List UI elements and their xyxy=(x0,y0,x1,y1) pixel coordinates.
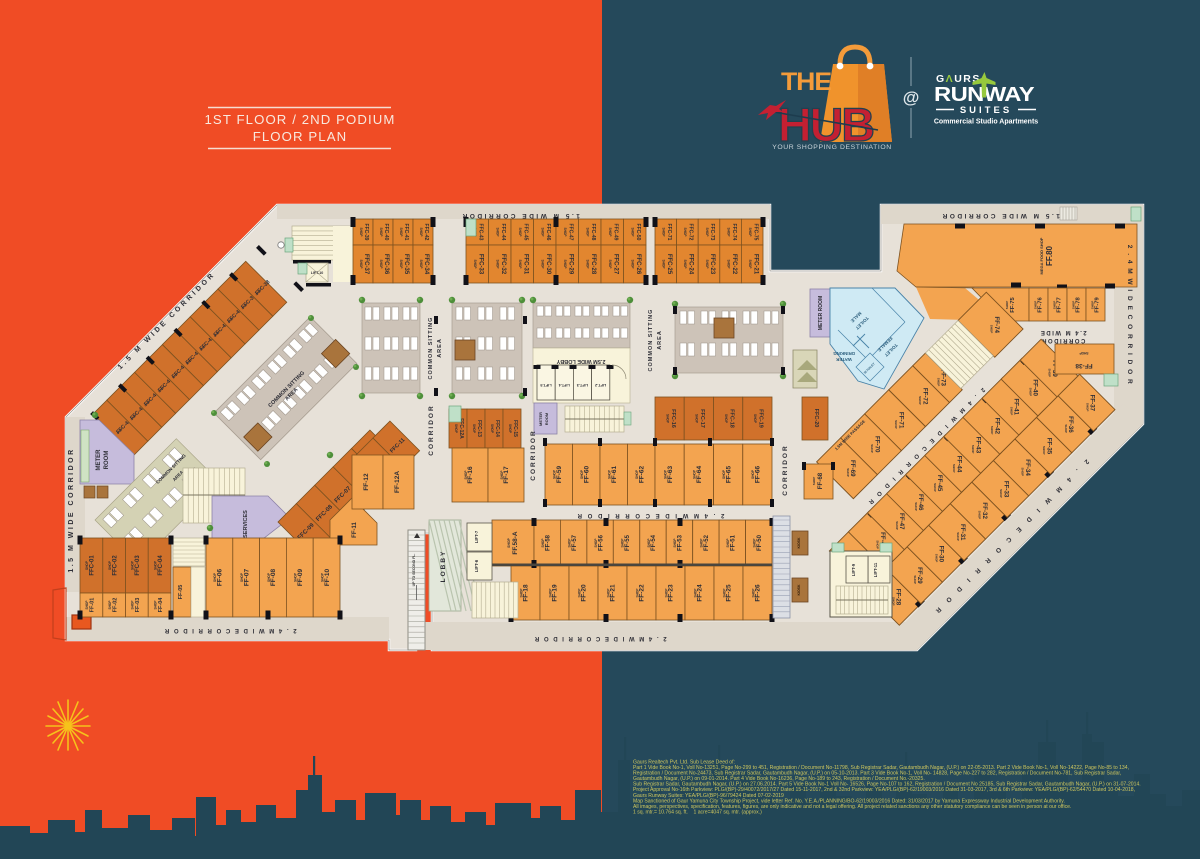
svg-text:SHOP: SHOP xyxy=(673,538,677,548)
svg-text:SHOP: SHOP xyxy=(496,227,500,237)
svg-text:FF-59: FF-59 xyxy=(556,465,563,483)
svg-text:SHOP: SHOP xyxy=(724,414,728,424)
svg-text:CORRIDOR: CORRIDOR xyxy=(1041,337,1086,343)
svg-text:1.5 M WIDE CORRIDOR: 1.5 M WIDE CORRIDOR xyxy=(460,212,580,219)
svg-text:SHOP: SHOP xyxy=(472,424,476,434)
svg-text:2.5M WIDE LOBBY: 2.5M WIDE LOBBY xyxy=(556,358,605,364)
svg-text:SHOP: SHOP xyxy=(631,259,635,269)
svg-text:FF-35: FF-35 xyxy=(1045,438,1052,455)
svg-text:SHOP: SHOP xyxy=(726,259,730,269)
svg-text:FFC-21: FFC-21 xyxy=(752,254,758,275)
svg-text:SHOP: SHOP xyxy=(508,424,512,434)
svg-text:FFC-43: FFC-43 xyxy=(477,224,483,241)
svg-text:SHOP: SHOP xyxy=(518,227,522,237)
svg-text:FFC-33: FFC-33 xyxy=(477,254,483,275)
svg-text:SHOP: SHOP xyxy=(631,227,635,237)
svg-text:FF-34: FF-34 xyxy=(1024,459,1031,476)
svg-text:FFC-24: FFC-24 xyxy=(688,254,694,275)
svg-text:SHOP: SHOP xyxy=(85,560,89,570)
svg-text:FFC-32: FFC-32 xyxy=(500,254,506,275)
svg-text:FF-32: FF-32 xyxy=(981,502,988,519)
svg-text:FFC-40: FFC-40 xyxy=(383,224,389,241)
svg-text:FF.80: FF.80 xyxy=(1045,245,1054,266)
svg-text:MEGA FOOD SHOP: MEGA FOOD SHOP xyxy=(1039,237,1044,274)
svg-text:SHOP: SHOP xyxy=(620,538,624,548)
svg-text:LIFT-3: LIFT-3 xyxy=(577,383,588,387)
svg-text:FFC-13: FFC-13 xyxy=(476,420,482,437)
svg-text:LIFT-6: LIFT-6 xyxy=(474,559,479,572)
svg-text:FF-69: FF-69 xyxy=(849,460,856,477)
svg-text:SHOP: SHOP xyxy=(108,560,112,570)
svg-text:FF-19: FF-19 xyxy=(552,584,559,602)
svg-text:FF-53: FF-53 xyxy=(678,534,684,551)
svg-text:FFC-01: FFC-01 xyxy=(90,555,96,576)
svg-text:FF-08: FF-08 xyxy=(270,568,277,586)
svg-text:COMMON SITTING: COMMON SITTING xyxy=(648,309,654,372)
svg-text:FFC-48: FFC-48 xyxy=(590,224,596,241)
svg-text:FF-21: FF-21 xyxy=(610,584,617,602)
svg-text:FF-74: FF-74 xyxy=(993,316,1000,333)
svg-text:FFC-74: FFC-74 xyxy=(731,224,737,241)
svg-text:FF-42: FF-42 xyxy=(993,418,1000,435)
svg-text:FF-12A: FF-12A xyxy=(394,471,401,493)
svg-text:SHOP: SHOP xyxy=(608,259,612,269)
svg-text:SHOP: SHOP xyxy=(153,560,157,570)
svg-text:FF-02: FF-02 xyxy=(112,598,118,613)
svg-text:FFC-44: FFC-44 xyxy=(500,224,506,241)
svg-text:FF-52: FF-52 xyxy=(704,534,710,551)
svg-text:FFC-02: FFC-02 xyxy=(112,555,118,576)
svg-text:2 . 4 M W I D E C O R R I D O: 2 . 4 M W I D E C O R R I D O R xyxy=(163,627,296,633)
svg-text:FFC-03: FFC-03 xyxy=(135,555,141,576)
svg-text:FFC-37: FFC-37 xyxy=(363,254,369,275)
svg-text:LIFT-10: LIFT-10 xyxy=(311,271,324,275)
svg-text:FFC-30: FFC-30 xyxy=(545,254,551,275)
svg-text:FF-18: FF-18 xyxy=(523,584,530,602)
svg-text:FFC-27: FFC-27 xyxy=(613,254,619,275)
svg-text:SHOP: SHOP xyxy=(726,227,730,237)
svg-text:CORRIDOR: CORRIDOR xyxy=(782,444,789,495)
svg-text:FFC-16: FFC-16 xyxy=(670,409,676,428)
svg-text:SHOP: SHOP xyxy=(695,414,699,424)
svg-text:SHOP: SHOP xyxy=(586,227,590,237)
svg-text:FFC-25: FFC-25 xyxy=(666,254,672,275)
svg-text:FFC-75: FFC-75 xyxy=(752,224,758,241)
svg-text:LIFT-7: LIFT-7 xyxy=(474,530,479,543)
svg-text:FF-03: FF-03 xyxy=(135,598,141,613)
svg-text:CORRIDOR: CORRIDOR xyxy=(428,404,435,455)
svg-text:SHOP: SHOP xyxy=(563,227,567,237)
svg-text:1.5 M WIDE CORRIDOR: 1.5 M WIDE CORRIDOR xyxy=(940,212,1060,219)
svg-text:FF-23: FF-23 xyxy=(668,584,675,602)
svg-text:FFC-41: FFC-41 xyxy=(403,224,409,241)
svg-text:FFC-14: FFC-14 xyxy=(494,420,500,437)
svg-text:FFC-39: FFC-39 xyxy=(363,224,369,241)
svg-text:SHOP: SHOP xyxy=(753,414,757,424)
svg-text:FF-58: FF-58 xyxy=(545,534,551,551)
svg-text:FF-45: FF-45 xyxy=(936,475,943,492)
svg-text:SHOP: SHOP xyxy=(563,259,567,269)
svg-text:SHOP: SHOP xyxy=(608,227,612,237)
svg-text:FFC-04: FFC-04 xyxy=(158,555,164,576)
svg-text:FF-10: FF-10 xyxy=(324,568,331,586)
svg-text:FF-22: FF-22 xyxy=(639,584,646,602)
svg-text:FF-43: FF-43 xyxy=(974,437,981,454)
svg-text:FF-37: FF-37 xyxy=(1089,395,1096,412)
svg-text:CORRIDOR: CORRIDOR xyxy=(530,429,537,480)
svg-text:DRINKING: DRINKING xyxy=(833,351,855,356)
svg-text:SHOP: SHOP xyxy=(419,259,423,269)
svg-text:ROOM: ROOM xyxy=(104,451,110,470)
svg-text:SHOP: SHOP xyxy=(399,259,403,269)
svg-text:LIFT-5: LIFT-5 xyxy=(540,383,551,387)
svg-text:FFC-71: FFC-71 xyxy=(666,224,672,241)
svg-text:FF-30: FF-30 xyxy=(938,546,945,563)
svg-text:SHOP: SHOP xyxy=(473,259,477,269)
svg-text:FF-54: FF-54 xyxy=(651,534,657,551)
svg-text:FF-65: FF-65 xyxy=(725,465,732,483)
svg-text:FF-44: FF-44 xyxy=(955,456,962,473)
svg-text:FFC-23: FFC-23 xyxy=(709,254,715,275)
svg-text:FF.58-A: FF.58-A xyxy=(512,531,519,554)
svg-text:FF-68: FF-68 xyxy=(817,472,824,489)
svg-text:FF-28: FF-28 xyxy=(894,589,901,606)
svg-text:FFC-47: FFC-47 xyxy=(568,224,574,241)
svg-text:Commercial Studio Apartments: Commercial Studio Apartments xyxy=(934,119,1038,126)
svg-text:SHOP: SHOP xyxy=(568,538,572,548)
svg-text:FF-47: FF-47 xyxy=(898,513,905,530)
svg-text:LIFT-4: LIFT-4 xyxy=(558,383,570,387)
svg-text:FF-72: FF-72 xyxy=(921,388,928,405)
svg-text:FFC-19: FFC-19 xyxy=(758,409,764,428)
svg-text:2 . 4 M W I D E C O R R I D O: 2 . 4 M W I D E C O R R I D O R xyxy=(533,635,666,641)
svg-text:FF-55: FF-55 xyxy=(625,534,631,551)
svg-text:FF-09: FF-09 xyxy=(297,568,304,586)
svg-text:SHOP: SHOP xyxy=(662,259,666,269)
svg-text:AREA: AREA xyxy=(657,330,663,350)
svg-text:SHOP: SHOP xyxy=(748,227,752,237)
svg-text:SHOP: SHOP xyxy=(379,227,383,237)
svg-text:1.5 M WIDE CORRIDOR: 1.5 M WIDE CORRIDOR xyxy=(68,447,75,572)
svg-text:2.4 M WIDE: 2.4 M WIDE xyxy=(1039,329,1086,335)
svg-text:SHOP: SHOP xyxy=(594,538,598,548)
svg-text:SHOP: SHOP xyxy=(683,259,687,269)
svg-text:FF-56: FF-56 xyxy=(598,534,604,551)
svg-text:SHOP: SHOP xyxy=(108,600,112,610)
svg-text:FF-17: FF-17 xyxy=(503,466,510,484)
svg-text:SHOP: SHOP xyxy=(496,259,500,269)
svg-text:SHOP: SHOP xyxy=(379,259,383,269)
svg-text:FF-70: FF-70 xyxy=(873,436,880,453)
svg-text:FF-11: FF-11 xyxy=(352,522,358,538)
svg-text:FFC-15: FFC-15 xyxy=(512,420,518,437)
svg-text:FFC-18: FFC-18 xyxy=(728,409,734,428)
svg-text:SHOP: SHOP xyxy=(454,424,458,434)
svg-text:SHOP: SHOP xyxy=(85,600,89,610)
svg-text:AREA: AREA xyxy=(437,338,443,358)
svg-text:FF-64: FF-64 xyxy=(696,465,703,483)
svg-text:SHOP: SHOP xyxy=(490,424,494,434)
svg-text:FFC-42: FFC-42 xyxy=(423,224,429,241)
svg-text:KIOSK: KIOSK xyxy=(797,537,801,549)
svg-text:SHOP: SHOP xyxy=(812,477,816,486)
svg-text:SHOP: SHOP xyxy=(419,227,423,237)
svg-text:2 . 4 M W I D E C O R R I D O: 2 . 4 M W I D E C O R R I D O R xyxy=(1126,245,1133,385)
svg-text:SHOP: SHOP xyxy=(726,538,730,548)
svg-text:FF-60: FF-60 xyxy=(584,465,591,483)
svg-text:SHOP: SHOP xyxy=(665,414,669,424)
svg-text:SUITES: SUITES xyxy=(960,105,1012,116)
svg-text:FF-51: FF-51 xyxy=(731,534,737,551)
svg-text:METER: METER xyxy=(538,412,543,426)
svg-text:SHOP: SHOP xyxy=(399,227,403,237)
svg-text:FF-12: FF-12 xyxy=(363,473,370,491)
svg-text:SHOP: SHOP xyxy=(705,227,709,237)
svg-text:KIOSK: KIOSK xyxy=(797,584,801,596)
svg-text:FFC-49: FFC-49 xyxy=(613,224,619,241)
svg-text:FF-04: FF-04 xyxy=(158,597,164,613)
svg-text:FF-29: FF-29 xyxy=(916,567,923,584)
svg-text:FF-46: FF-46 xyxy=(917,494,924,511)
svg-text:FF-61: FF-61 xyxy=(611,465,618,483)
svg-text:LIFT-11: LIFT-11 xyxy=(873,562,878,577)
svg-text:FLOOR PLAN: FLOOR PLAN xyxy=(253,129,348,144)
svg-text:SHOP: SHOP xyxy=(541,538,545,548)
svg-text:FF-24: FF-24 xyxy=(697,584,704,602)
svg-text:FF-62: FF-62 xyxy=(639,465,646,483)
svg-text:FFC-73: FFC-73 xyxy=(709,224,715,241)
svg-text:FF-05: FF-05 xyxy=(178,585,184,600)
svg-text:FF-01: FF-01 xyxy=(90,598,96,613)
svg-text:SHOP: SHOP xyxy=(131,600,135,610)
svg-text:FFC-28: FFC-28 xyxy=(590,254,596,275)
svg-text:LOBBY: LOBBY xyxy=(440,550,447,583)
svg-text:SHOP: SHOP xyxy=(586,259,590,269)
svg-text:SHOP: SHOP xyxy=(748,259,752,269)
svg-text:FFC-50: FFC-50 xyxy=(635,224,641,241)
svg-text:FFC-34: FFC-34 xyxy=(423,254,429,275)
svg-text:FF-26: FF-26 xyxy=(755,584,762,602)
svg-text:LIFT-9: LIFT-9 xyxy=(851,563,856,576)
svg-text:FF-07: FF-07 xyxy=(243,568,250,586)
svg-text:SHOP: SHOP xyxy=(541,227,545,237)
svg-text:WATER: WATER xyxy=(835,357,851,362)
svg-text:FFC-17: FFC-17 xyxy=(699,409,705,428)
svg-text:2 . 4 M W I D E C O R R I D O: 2 . 4 M W I D E C O R R I D O R xyxy=(576,512,725,518)
svg-text:FF-20: FF-20 xyxy=(581,584,588,602)
svg-text:FF-78: FF-78 xyxy=(1076,296,1082,312)
svg-text:1 sq. mtr.= 10.764 sq. ft.: 1 sq. mtr.= 10.764 sq. ft. 1 acre=4047 s… xyxy=(633,809,762,815)
svg-text:SHOP: SHOP xyxy=(131,560,135,570)
svg-text:FFC-72: FFC-72 xyxy=(688,224,694,241)
svg-text:SHOP: SHOP xyxy=(1005,301,1009,310)
svg-text:1ST FLOOR / 2ND PODIUM: 1ST FLOOR / 2ND PODIUM xyxy=(204,112,395,127)
svg-text:FFC-31: FFC-31 xyxy=(523,254,529,275)
svg-text:FFC-35: FFC-35 xyxy=(403,254,409,275)
svg-text:FF-36: FF-36 xyxy=(1067,416,1074,433)
svg-text:SHOP: SHOP xyxy=(541,259,545,269)
svg-text:FF-57: FF-57 xyxy=(572,534,578,551)
svg-text:THE: THE xyxy=(781,68,831,96)
svg-text:SHOP: SHOP xyxy=(647,538,651,548)
svg-text:FF-33: FF-33 xyxy=(1002,481,1009,498)
svg-text:FF-40: FF-40 xyxy=(1032,379,1039,396)
svg-text:@: @ xyxy=(903,88,920,107)
svg-text:FF-77: FF-77 xyxy=(1057,297,1063,312)
svg-text:FFC-22: FFC-22 xyxy=(731,254,737,275)
svg-text:SHOP: SHOP xyxy=(359,227,363,237)
svg-text:FFC-45: FFC-45 xyxy=(523,224,529,241)
svg-text:FF-50: FF-50 xyxy=(757,534,763,551)
svg-text:FF-16: FF-16 xyxy=(467,466,474,484)
svg-text:UP TO SECOND FL.: UP TO SECOND FL. xyxy=(412,554,416,587)
svg-text:FFC-20: FFC-20 xyxy=(813,409,819,428)
svg-text:METER ROOM: METER ROOM xyxy=(818,296,824,330)
svg-text:FF-25: FF-25 xyxy=(726,584,733,602)
svg-text:FF-71: FF-71 xyxy=(897,412,904,429)
svg-text:FF-31: FF-31 xyxy=(959,524,966,541)
svg-text:FF-75: FF-75 xyxy=(1010,296,1016,312)
svg-text:SHOP: SHOP xyxy=(662,227,666,237)
svg-text:FF-06: FF-06 xyxy=(217,568,224,586)
svg-text:ROOM: ROOM xyxy=(544,412,549,425)
svg-text:LIFT-2: LIFT-2 xyxy=(595,383,606,387)
svg-text:METER: METER xyxy=(96,449,102,471)
svg-text:SHOP: SHOP xyxy=(1079,351,1089,355)
svg-text:SHOP: SHOP xyxy=(507,537,511,547)
svg-text:SHOP: SHOP xyxy=(359,259,363,269)
svg-text:SHOP: SHOP xyxy=(753,538,757,548)
svg-text:FF-41: FF-41 xyxy=(1013,398,1020,415)
svg-text:SHOP: SHOP xyxy=(683,227,687,237)
svg-text:FF-76: FF-76 xyxy=(1038,296,1044,312)
svg-text:FFC-26: FFC-26 xyxy=(635,254,641,275)
svg-text:FFC-46: FFC-46 xyxy=(545,224,551,241)
svg-text:SHOP: SHOP xyxy=(153,600,157,610)
svg-text:FF-66: FF-66 xyxy=(755,465,762,483)
svg-text:FF-79: FF-79 xyxy=(1095,296,1101,312)
svg-text:SHOP: SHOP xyxy=(518,259,522,269)
svg-text:FFC-36: FFC-36 xyxy=(383,254,389,275)
svg-text:FF-63: FF-63 xyxy=(667,465,674,483)
svg-text:SHOP: SHOP xyxy=(705,259,709,269)
svg-text:SHOP: SHOP xyxy=(700,538,704,548)
svg-text:YOUR SHOPPING DESTINATION: YOUR SHOPPING DESTINATION xyxy=(772,144,891,151)
svg-text:SERVICES: SERVICES xyxy=(243,510,249,538)
svg-text:COMMON SITTING: COMMON SITTING xyxy=(428,317,434,380)
svg-text:FF-38: FF-38 xyxy=(1075,362,1093,369)
svg-text:FFC-29: FFC-29 xyxy=(568,254,574,275)
